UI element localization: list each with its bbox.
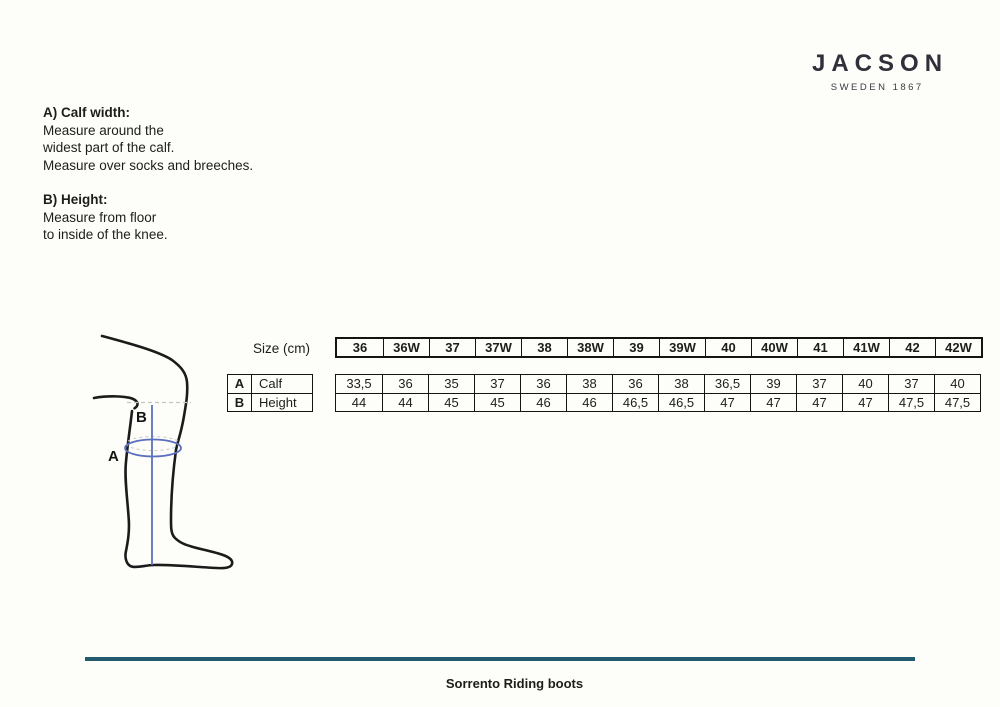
brand-logo: JACSON SWEDEN 1867 [806, 50, 946, 93]
calf-row-label: A Calf [228, 375, 312, 393]
leg-outline [102, 336, 232, 568]
height-value-cell: 44 [382, 394, 428, 412]
height-value-cell: 45 [474, 394, 520, 412]
height-value-cell: 46,5 [658, 394, 704, 412]
size-header-cell: 36 [337, 339, 383, 356]
instruction-section-calf: A) Calf width: Measure around the widest… [43, 104, 253, 174]
calf-value-cell: 36,5 [704, 375, 750, 393]
height-value-cell: 46 [566, 394, 612, 412]
row-key-a: A [228, 375, 252, 393]
row-label-height: Height [252, 394, 312, 412]
size-header-cell: 41 [797, 339, 843, 356]
height-value-cell: 47 [704, 394, 750, 412]
calf-value-cell: 36 [520, 375, 566, 393]
calf-value-cell: 37 [474, 375, 520, 393]
measuring-instructions: A) Calf width: Measure around the widest… [43, 104, 253, 244]
calf-value-cell: 35 [428, 375, 474, 393]
row-key-b: B [228, 394, 252, 412]
height-value-cell: 47 [796, 394, 842, 412]
size-header-row: 3636W3737W3838W3939W4040W4141W4242W [335, 337, 983, 358]
instruction-line: widest part of the calf. [43, 139, 253, 157]
height-value-cell: 47 [750, 394, 796, 412]
instruction-line: Measure from floor [43, 209, 253, 227]
height-row: 44444545464646,546,54747474747,547,5 [336, 393, 980, 412]
row-label-table: A Calf B Height [227, 374, 313, 412]
instruction-line: to inside of the knee. [43, 226, 253, 244]
calf-row: 33,53635373638363836,53937403740 [336, 375, 980, 393]
height-heading: B) Height: [43, 191, 253, 209]
instruction-line: Measure over socks and breeches. [43, 157, 253, 175]
calf-value-cell: 37 [888, 375, 934, 393]
size-header-cell: 37W [475, 339, 521, 356]
size-header-cell: 41W [843, 339, 889, 356]
size-header-cell: 42 [889, 339, 935, 356]
height-value-cell: 47,5 [934, 394, 980, 412]
size-header-cell: 38W [567, 339, 613, 356]
calf-value-cell: 37 [796, 375, 842, 393]
size-header-cell: 38 [521, 339, 567, 356]
height-value-cell: 45 [428, 394, 474, 412]
measurement-table: 33,53635373638363836,53937403740 4444454… [335, 374, 981, 412]
calf-value-cell: 36 [382, 375, 428, 393]
size-header-cell: 36W [383, 339, 429, 356]
size-header-cell: 40 [705, 339, 751, 356]
size-guide-page: JACSON SWEDEN 1867 A) Calf width: Measur… [0, 0, 1000, 707]
calf-width-heading: A) Calf width: [43, 104, 253, 122]
height-value-cell: 44 [336, 394, 382, 412]
figure-label-b: B [136, 409, 147, 426]
height-value-cell: 46,5 [612, 394, 658, 412]
row-label-calf: Calf [252, 375, 312, 393]
calf-value-cell: 40 [842, 375, 888, 393]
size-header-cell: 40W [751, 339, 797, 356]
product-name: Sorrento Riding boots [22, 676, 1000, 691]
instruction-section-height: B) Height: Measure from floor to inside … [43, 191, 253, 244]
brand-name: JACSON [806, 50, 946, 78]
height-value-cell: 46 [520, 394, 566, 412]
calf-value-cell: 33,5 [336, 375, 382, 393]
size-header-cell: 37 [429, 339, 475, 356]
height-value-cell: 47,5 [888, 394, 934, 412]
calf-value-cell: 38 [566, 375, 612, 393]
size-header-cell: 39W [659, 339, 705, 356]
footer-divider [85, 657, 915, 661]
calf-value-cell: 38 [658, 375, 704, 393]
calf-value-cell: 36 [612, 375, 658, 393]
brand-tagline: SWEDEN 1867 [806, 82, 946, 93]
height-row-label: B Height [228, 393, 312, 412]
calf-value-cell: 39 [750, 375, 796, 393]
height-value-cell: 47 [842, 394, 888, 412]
figure-label-a: A [108, 448, 119, 465]
size-unit-label: Size (cm) [190, 341, 310, 356]
calf-value-cell: 40 [934, 375, 980, 393]
instruction-line: Measure around the [43, 122, 253, 140]
size-header-cell: 42W [935, 339, 981, 356]
size-header-cell: 39 [613, 339, 659, 356]
